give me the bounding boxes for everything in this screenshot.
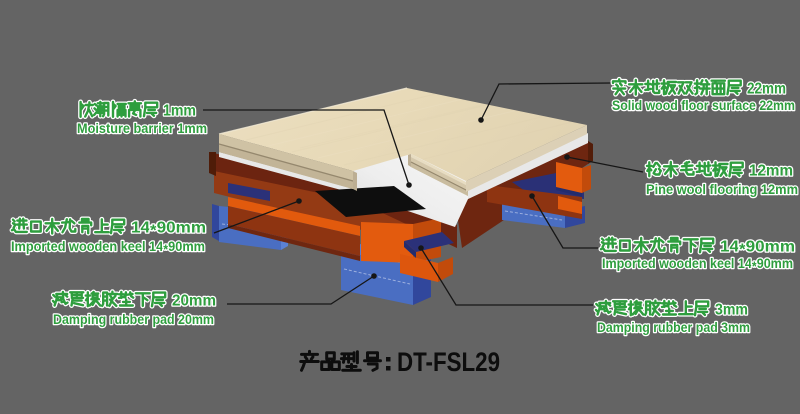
svg-text:Solid wood floor surface 22mm: Solid wood floor surface 22mm xyxy=(612,98,795,113)
svg-text:Moisture barrier 1mm: Moisture barrier 1mm xyxy=(77,121,207,136)
svg-text:20mm: 20mm xyxy=(172,293,216,310)
svg-text:DT-FSL29: DT-FSL29 xyxy=(397,347,500,377)
svg-text:Damping rubber pad 3mm: Damping rubber pad 3mm xyxy=(597,320,750,335)
svg-text:1mm: 1mm xyxy=(163,103,196,120)
svg-text:3mm: 3mm xyxy=(715,302,748,319)
svg-text:Pine wool flooring 12mm: Pine wool flooring 12mm xyxy=(646,182,798,197)
svg-text:Damping rubber pad 20mm: Damping rubber pad 20mm xyxy=(53,312,214,327)
svg-text:12mm: 12mm xyxy=(749,163,793,180)
svg-text:22mm: 22mm xyxy=(747,81,786,98)
